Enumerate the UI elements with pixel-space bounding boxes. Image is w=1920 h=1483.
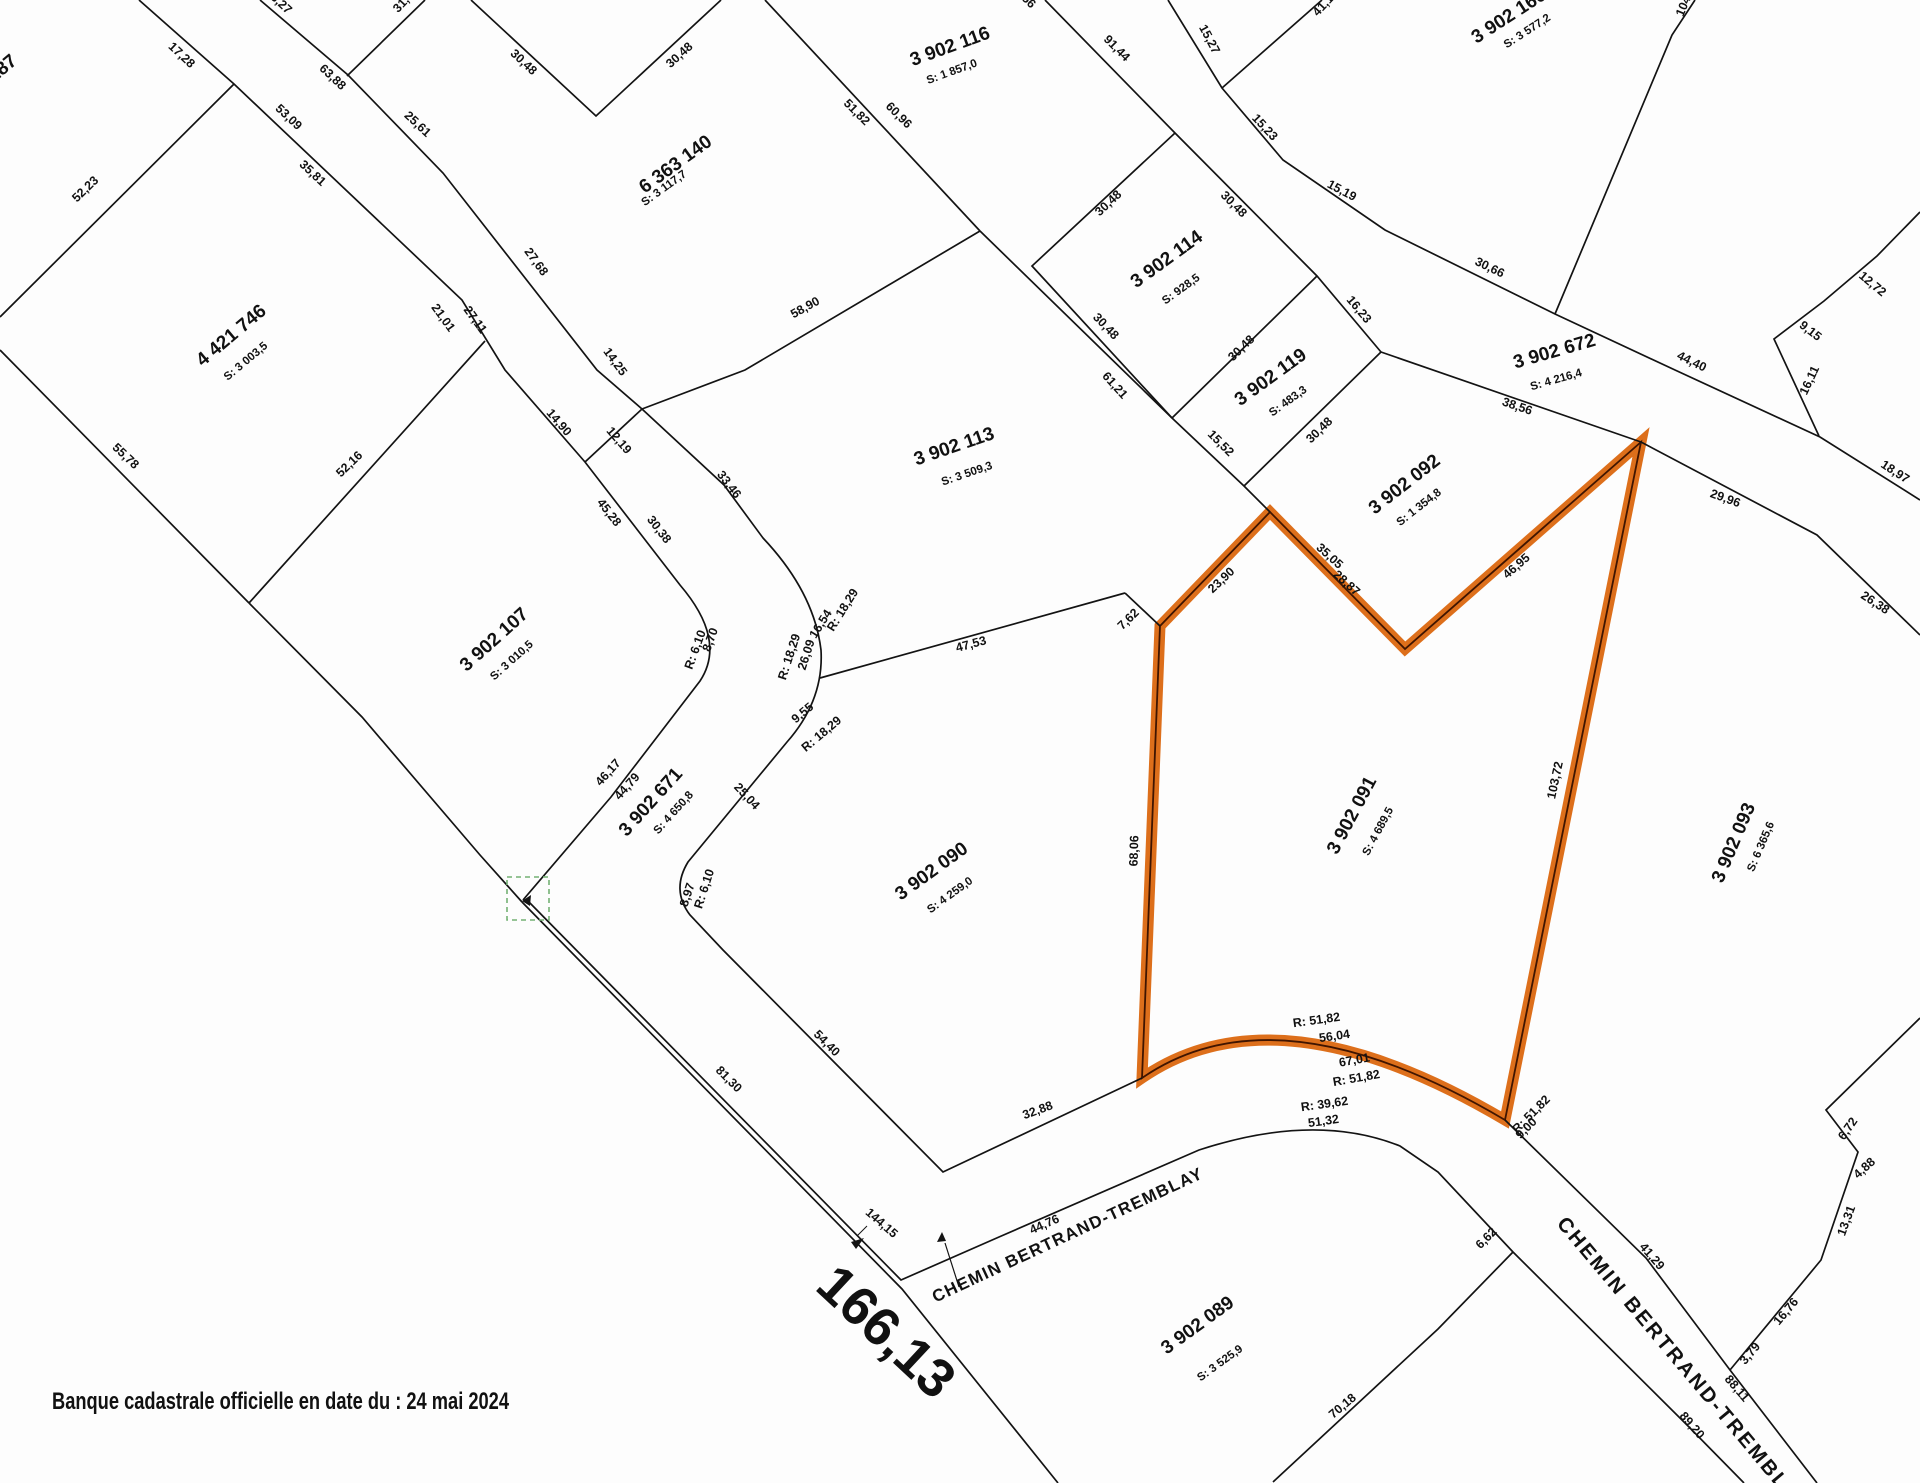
svg-text:68,06: 68,06 — [1126, 835, 1141, 867]
svg-text:Banque cadastrale officielle e: Banque cadastrale officielle en date du … — [52, 1388, 509, 1415]
